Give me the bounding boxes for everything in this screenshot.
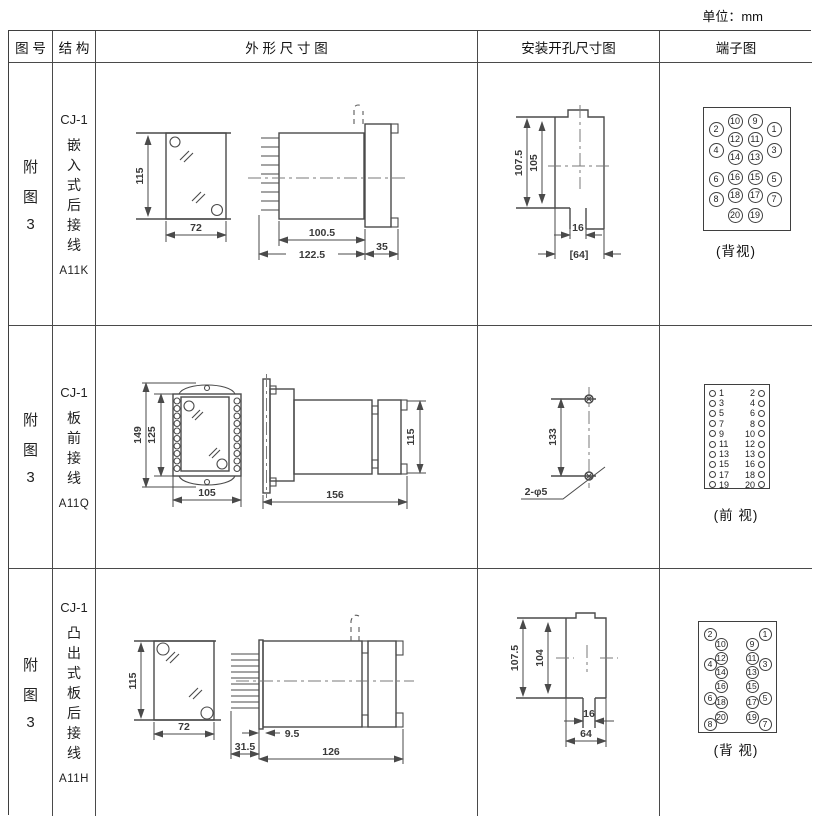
terminal-number: 13 — [716, 449, 732, 459]
terminal-pin: 10 — [715, 638, 728, 651]
terminal-pin: 14 — [728, 150, 743, 165]
hole-spec-label: 2-φ5 — [525, 486, 548, 498]
side-view: 9.5 31.5 126 — [231, 615, 414, 764]
terminal-pin — [709, 451, 716, 458]
terminal-diagram: 1234567891011121313151617181920 — [704, 384, 770, 489]
terminal-pin: 6 — [709, 172, 724, 187]
terminal-pin: 15 — [748, 170, 763, 185]
outline-cell-a11h: 115 72 — [96, 569, 478, 816]
terminal-row: 34 — [705, 398, 769, 408]
vertical-char: 式 — [67, 175, 81, 195]
dim-cutout-width: 64 — [580, 728, 592, 740]
terminal-screws-left — [174, 398, 180, 472]
terminal-number: 8 — [747, 419, 758, 429]
terminal-pin — [709, 441, 716, 448]
header-figure: 图 号 — [9, 31, 53, 63]
center-marks — [556, 645, 618, 672]
terminal-row: 910 — [705, 429, 769, 439]
terminal-pins — [261, 138, 279, 210]
dim-outer-height: 107.5 — [513, 150, 525, 176]
terminal-pin: 1 — [759, 628, 772, 641]
terminal-diagram: 2110912411314131615618175201987 — [698, 621, 777, 733]
terminal-row: 1920 — [705, 480, 769, 490]
dim-length: 156 — [326, 489, 344, 501]
terminal-row: 56 — [705, 408, 769, 418]
terminal-pin: 5 — [759, 692, 772, 705]
terminal-pin: 7 — [767, 192, 782, 207]
glass-hatch — [180, 151, 193, 162]
terminal-pin: 4 — [709, 143, 724, 158]
vertical-char: 线 — [67, 235, 81, 255]
terminal-caption: (背 视) — [660, 739, 812, 759]
structure-code: A11K — [59, 265, 88, 277]
terminal-pin — [758, 441, 765, 448]
terminal-pin: 19 — [746, 711, 759, 724]
terminal-pin — [758, 390, 765, 397]
terminal-caption: (背视) — [660, 240, 812, 260]
vertical-char: 板 — [67, 408, 81, 428]
dim-front-height: 115 — [134, 167, 146, 184]
terminal-number: 17 — [716, 470, 732, 480]
dim-front-width: 72 — [190, 222, 202, 234]
terminal-number: 10 — [742, 429, 758, 439]
dim-height: 125 — [146, 426, 158, 444]
terminal-pin: 2 — [709, 122, 724, 137]
structure-text: 板前接线 — [67, 408, 81, 488]
terminal-pin — [758, 461, 765, 468]
terminal-pin — [758, 420, 765, 427]
outline-drawing-a11h: 115 72 — [96, 569, 478, 814]
dim-inner-height: 105 — [528, 154, 540, 172]
terminal-cell-a11q: 1234567891011121313151617181920 (前 视) — [660, 326, 812, 569]
terminal-pin: 5 — [767, 172, 782, 187]
top-flange-arc — [179, 385, 235, 394]
terminal-row: 1718 — [705, 470, 769, 480]
structure-cell-a11k: CJ-1 嵌入式后接线 A11K — [53, 63, 96, 326]
terminal-pin: 8 — [704, 718, 717, 731]
vertical-char: 凸 — [67, 623, 81, 643]
vertical-char: 图 — [23, 186, 38, 207]
terminal-pin: 20 — [728, 208, 743, 223]
vertical-char: 附 — [23, 156, 38, 177]
terminal-pin — [709, 481, 716, 488]
header-structure: 结 构 — [53, 31, 96, 63]
terminal-pin — [709, 471, 716, 478]
dim-flange: 35 — [376, 241, 388, 253]
dim-length: 126 — [322, 746, 340, 758]
dim-inner-height: 104 — [534, 649, 546, 667]
vertical-char: 线 — [67, 743, 81, 763]
side-view: 100.5 122.5 35 — [248, 105, 408, 261]
install-cell-a11k: 107.5 105 16 [64] — [478, 63, 660, 326]
glass-hatch — [189, 688, 202, 699]
structure-cell-a11h: CJ-1 凸出式板后接线 A11H — [53, 569, 96, 816]
spec-table: 图 号 结 构 外 形 尺 寸 图 安装开孔尺寸图 端子图 附图3 CJ-1 嵌… — [8, 30, 811, 815]
terminal-number: 7 — [716, 419, 727, 429]
dim-hole-span: 133 — [547, 428, 559, 446]
vertical-char: 板 — [67, 683, 81, 703]
install-cell-a11q: 133 2-φ5 — [478, 326, 660, 569]
vertical-char: 附 — [23, 409, 38, 430]
cutout-profile — [517, 613, 606, 698]
terminal-number: 12 — [742, 439, 758, 449]
terminal-pin: 13 — [748, 150, 763, 165]
structure-text: 嵌入式后接线 — [67, 135, 81, 255]
terminal-number: 2 — [747, 388, 758, 398]
terminal-pin: 11 — [748, 132, 763, 147]
model-label: CJ-1 — [60, 385, 87, 400]
terminal-pin: 18 — [715, 696, 728, 709]
terminal-number: 20 — [742, 480, 758, 490]
terminal-pin: 7 — [759, 718, 772, 731]
vertical-char: 3 — [26, 714, 34, 731]
terminal-number: 16 — [742, 459, 758, 469]
terminal-pin — [709, 430, 716, 437]
vertical-char: 3 — [26, 216, 34, 233]
vertical-char: 后 — [67, 703, 81, 723]
terminal-pin: 4 — [704, 658, 717, 671]
structure-cell-a11q: CJ-1 板前接线 A11Q — [53, 326, 96, 569]
dim-side-height: 115 — [405, 428, 417, 445]
header-outline: 外 形 尺 寸 图 — [96, 31, 478, 63]
front-view: 115 72 — [134, 133, 231, 242]
model-label: CJ-1 — [60, 600, 87, 615]
vertical-char: 附 — [23, 654, 38, 675]
handle-dashed — [354, 105, 363, 124]
terminal-pin — [758, 430, 765, 437]
terminal-screws-right — [234, 398, 240, 472]
glass-hatch — [166, 652, 179, 663]
terminal-row: 1112 — [705, 439, 769, 449]
figure-cell-a11k: 附图3 — [9, 63, 53, 326]
glass-hatch — [209, 448, 220, 458]
dim-offset: 9.5 — [285, 728, 300, 740]
install-drawing-a11k: 107.5 105 16 [64] — [478, 63, 660, 326]
terminal-row: 1313 — [705, 449, 769, 459]
terminal-pin — [709, 410, 716, 417]
vertical-char: 后 — [67, 195, 81, 215]
terminal-pin: 9 — [746, 638, 759, 651]
vertical-char: 接 — [67, 448, 81, 468]
terminal-pin: 3 — [759, 658, 772, 671]
terminal-pin — [709, 420, 716, 427]
side-view: 115 156 — [263, 374, 426, 509]
terminal-pin: 16 — [728, 170, 743, 185]
vertical-char: 接 — [67, 215, 81, 235]
terminal-row: 12 — [705, 388, 769, 398]
dim-cutout-width: [64] — [570, 249, 589, 261]
vertical-char: 出 — [67, 643, 81, 663]
terminal-number: 11 — [716, 439, 731, 449]
terminal-pin: 17 — [746, 696, 759, 709]
terminal-pin — [758, 471, 765, 478]
outline-cell-a11k: 115 72 — [96, 63, 478, 326]
terminal-pin: 11 — [746, 652, 759, 665]
figure-cell-a11h: 附图3 — [9, 569, 53, 816]
terminal-pin — [758, 400, 765, 407]
terminal-pin: 1 — [767, 122, 782, 137]
terminal-row: 1516 — [705, 459, 769, 469]
vertical-char: 式 — [67, 663, 81, 683]
bottom-flange-arc — [179, 476, 235, 485]
terminal-number: 3 — [716, 398, 727, 408]
dim-outer-height: 107.5 — [509, 645, 521, 671]
structure-code: A11Q — [59, 498, 90, 510]
terminal-number: 18 — [742, 470, 758, 480]
terminal-pin — [758, 451, 765, 458]
dim-total-length: 122.5 — [299, 249, 325, 261]
terminal-pin: 14 — [715, 666, 728, 679]
outline-drawing-a11q: 149 125 105 — [96, 326, 478, 569]
terminal-number: 9 — [716, 429, 727, 439]
terminal-cell-a11k: 2109141211314136161558181772019 (背视) — [660, 63, 812, 326]
outline-cell-a11q: 149 125 105 — [96, 326, 478, 569]
install-cell-a11h: 107.5 104 16 64 — [478, 569, 660, 816]
figure-cell-a11q: 附图3 — [9, 326, 53, 569]
header-terminal: 端子图 — [660, 31, 812, 63]
terminal-pin: 12 — [728, 132, 743, 147]
front-view: 149 125 105 — [132, 383, 241, 507]
vertical-char: 图 — [23, 439, 38, 460]
terminal-pin — [709, 461, 716, 468]
terminal-pin — [758, 481, 765, 488]
terminal-row: 78 — [705, 419, 769, 429]
structure-text: 凸出式板后接线 — [67, 623, 81, 763]
terminal-pin: 19 — [748, 208, 763, 223]
vertical-char: 图 — [23, 684, 38, 705]
dim-slot-width: 16 — [583, 708, 595, 720]
model-label: CJ-1 — [60, 112, 87, 127]
terminal-pin: 16 — [715, 680, 728, 693]
terminal-pin: 13 — [746, 666, 759, 679]
terminal-diagram: 2109141211314136161558181772019 — [703, 107, 791, 231]
terminal-number: 6 — [747, 408, 758, 418]
terminal-number: 13 — [742, 449, 758, 459]
header-install: 安装开孔尺寸图 — [478, 31, 660, 63]
terminal-number: 15 — [716, 459, 732, 469]
terminal-pin: 10 — [728, 114, 743, 129]
datasheet-page: 单位：mm 图 号 结 构 外 形 尺 寸 图 安装开孔尺寸图 端子图 附图3 … — [0, 0, 821, 825]
dim-width: 105 — [198, 487, 216, 499]
terminal-cell-a11h: 2110912411314131615618175201987 (背 视) — [660, 569, 812, 816]
vertical-char: 嵌 — [67, 135, 81, 155]
front-view: 115 72 — [127, 641, 221, 740]
outline-drawing-a11k: 115 72 — [96, 63, 478, 326]
dim-total-height: 149 — [132, 426, 144, 444]
handle-dashed — [351, 615, 359, 641]
terminal-pin: 17 — [748, 188, 763, 203]
terminal-number: 1 — [716, 388, 727, 398]
dim-slot-width: 16 — [572, 222, 584, 234]
vertical-char: 线 — [67, 468, 81, 488]
vertical-char: 3 — [26, 469, 34, 486]
terminal-pin — [709, 400, 716, 407]
terminal-number: 5 — [716, 408, 727, 418]
terminal-pin: 15 — [746, 680, 759, 693]
vertical-char: 前 — [67, 428, 81, 448]
terminal-caption: (前 视) — [660, 504, 812, 524]
glass-hatch — [192, 410, 203, 420]
dim-pins-length: 31.5 — [235, 741, 256, 753]
vertical-char: 入 — [67, 155, 81, 175]
dim-body-length: 100.5 — [309, 227, 335, 239]
terminal-pin: 2 — [704, 628, 717, 641]
terminal-pin: 9 — [748, 114, 763, 129]
terminal-number: 4 — [747, 398, 758, 408]
dim-front-height: 115 — [127, 672, 139, 689]
terminal-pin: 8 — [709, 192, 724, 207]
dim-front-width: 72 — [178, 721, 190, 733]
vertical-char: 接 — [67, 723, 81, 743]
terminal-pin: 18 — [728, 188, 743, 203]
glass-hatch — [192, 192, 205, 203]
unit-label: 单位：mm — [702, 6, 763, 25]
install-drawing-a11q: 133 2-φ5 — [478, 326, 660, 569]
install-drawing-a11h: 107.5 104 16 64 — [478, 569, 660, 814]
structure-code: A11H — [59, 773, 89, 785]
terminal-pin: 3 — [767, 143, 782, 158]
cutout-profile — [516, 117, 604, 229]
terminal-pin — [758, 410, 765, 417]
terminal-pin — [709, 390, 716, 397]
terminal-number: 19 — [716, 480, 732, 490]
